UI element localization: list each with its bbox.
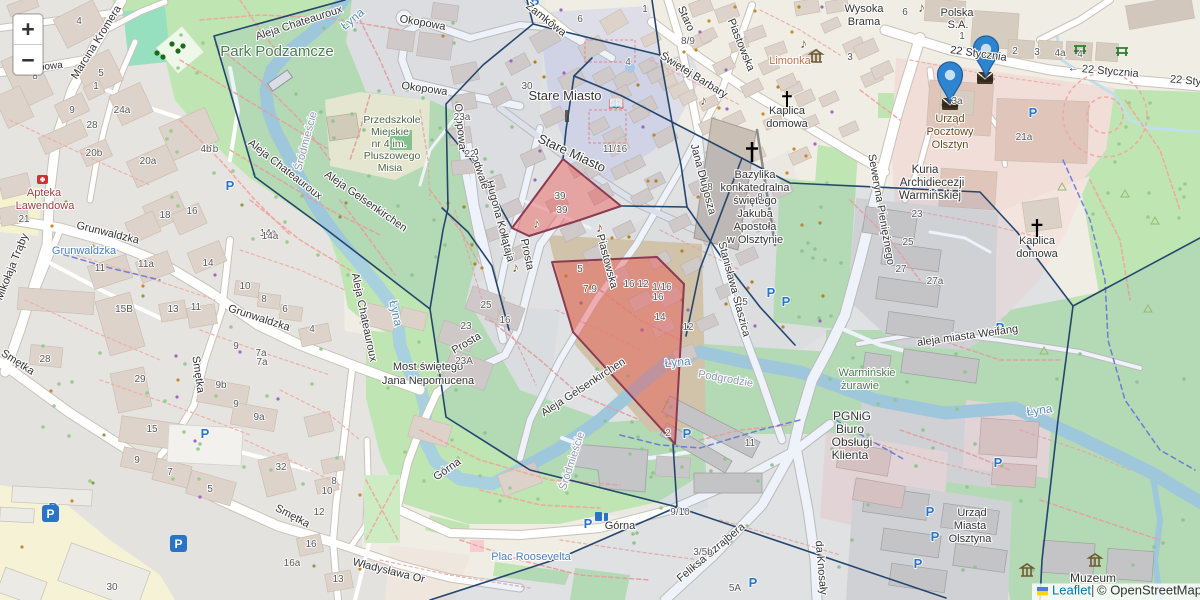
svg-text:5: 5 [742, 297, 748, 308]
svg-text:2: 2 [665, 428, 671, 439]
svg-text:P: P [914, 556, 923, 571]
svg-text:13: 13 [167, 304, 179, 315]
svg-text:1: 1 [93, 81, 99, 92]
svg-text:Apteka: Apteka [27, 187, 62, 199]
svg-text:Limonka: Limonka [769, 55, 811, 67]
svg-text:♪: ♪ [512, 259, 519, 275]
svg-text:4a: 4a [1054, 48, 1066, 59]
svg-text:4: 4 [625, 57, 631, 68]
svg-text:10: 10 [239, 281, 251, 292]
svg-text:−: − [21, 47, 34, 73]
svg-text:9: 9 [69, 105, 75, 116]
svg-text:14: 14 [202, 258, 214, 269]
svg-text:1: 1 [959, 31, 965, 42]
svg-text:15: 15 [146, 424, 158, 435]
svg-text:7.9: 7.9 [583, 284, 597, 295]
svg-text:28: 28 [86, 120, 98, 131]
svg-text:39: 39 [556, 205, 568, 216]
svg-text:22: 22 [464, 149, 476, 160]
svg-text:24a: 24a [114, 105, 131, 116]
svg-text:4: 4 [76, 16, 82, 27]
svg-text:Apostoła: Apostoła [734, 221, 778, 233]
svg-text:23a: 23a [454, 112, 471, 123]
svg-text:© OpenStreetMap: © OpenStreetMap [1097, 583, 1200, 598]
svg-text:16: 16 [305, 539, 317, 550]
svg-text:Przedszkole: Przedszkole [363, 114, 420, 126]
svg-text:16: 16 [499, 315, 511, 326]
svg-text:3/5b: 3/5b [693, 547, 713, 558]
svg-text:5: 5 [207, 484, 213, 495]
svg-text:23: 23 [911, 209, 923, 220]
svg-text:Archidiecezji: Archidiecezji [900, 177, 965, 189]
svg-text:6: 6 [577, 14, 583, 25]
svg-text:Kuria: Kuria [912, 164, 939, 176]
svg-text:Biuro: Biuro [836, 422, 864, 436]
svg-text:16: 16 [186, 206, 198, 217]
svg-text:Obsługi: Obsługi [832, 435, 873, 449]
svg-text:+: + [21, 16, 34, 42]
svg-text:Brama: Brama [848, 16, 881, 28]
svg-text:5: 5 [98, 68, 104, 79]
svg-text:9b: 9b [215, 380, 227, 391]
svg-text:13: 13 [332, 574, 344, 585]
svg-text:Warmińskiej: Warmińskiej [899, 190, 961, 202]
svg-text:32: 32 [275, 462, 287, 473]
svg-text:Leaflet: Leaflet [1052, 583, 1091, 598]
svg-text:w Olsztynie: w Olsztynie [726, 234, 783, 246]
svg-text:Jakuba: Jakuba [737, 208, 773, 220]
svg-text:11a: 11a [138, 259, 154, 270]
svg-text:Plac Roosevelta: Plac Roosevelta [491, 551, 571, 563]
svg-text:PGNiG: PGNiG [833, 409, 871, 423]
svg-text:Górna: Górna [605, 520, 636, 532]
svg-text:28: 28 [39, 354, 51, 365]
svg-text:P: P [994, 455, 1003, 470]
svg-text:18: 18 [159, 210, 171, 221]
svg-text:Park Podzamcze: Park Podzamcze [220, 43, 333, 60]
svg-text:11: 11 [191, 302, 202, 313]
svg-text:3a: 3a [951, 96, 963, 107]
svg-text:Kaplica: Kaplica [769, 105, 806, 117]
svg-text:żurawie: żurawie [841, 380, 879, 392]
svg-text:9: 9 [233, 399, 239, 410]
svg-text:nr 4 im.: nr 4 im. [371, 138, 406, 150]
svg-text:1/16: 1/16 [652, 282, 672, 293]
svg-text:P: P [767, 285, 776, 300]
svg-text:21: 21 [18, 214, 30, 225]
svg-text:Wysoka: Wysoka [844, 3, 884, 15]
svg-text:P: P [46, 507, 54, 521]
svg-text:6: 6 [282, 304, 288, 315]
svg-text:♪: ♪ [800, 35, 807, 51]
svg-text:9: 9 [134, 455, 140, 466]
svg-text:Bazylika: Bazylika [735, 169, 777, 181]
svg-text:P: P [782, 294, 791, 309]
svg-text:P: P [683, 426, 692, 441]
svg-text:4: 4 [309, 324, 315, 335]
svg-text:11: 11 [745, 438, 756, 449]
svg-text:15B: 15B [115, 304, 133, 315]
svg-text:8: 8 [757, 192, 763, 203]
svg-text:konkatedralna: konkatedralna [720, 182, 790, 194]
svg-text:16a: 16a [284, 558, 301, 569]
svg-text:P: P [201, 426, 210, 441]
svg-text:2: 2 [1012, 46, 1018, 57]
svg-text:9a: 9a [253, 412, 265, 423]
svg-text:11/16: 11/16 [603, 144, 628, 155]
svg-text:Klienta: Klienta [832, 448, 869, 462]
svg-text:domowa: domowa [1016, 248, 1058, 260]
svg-text:P: P [931, 529, 940, 544]
svg-text:27: 27 [895, 264, 907, 275]
svg-text:20a: 20a [140, 156, 157, 167]
svg-text:♪: ♪ [700, 92, 707, 108]
svg-text:23A: 23A [455, 356, 473, 367]
svg-text:39: 39 [554, 191, 566, 202]
svg-text:23: 23 [460, 321, 472, 332]
svg-text:4b: 4b [200, 144, 212, 155]
svg-text:16 12: 16 12 [623, 279, 648, 290]
svg-text:3: 3 [847, 52, 853, 63]
svg-text:12: 12 [313, 507, 325, 518]
svg-text:Pluszowego: Pluszowego [364, 150, 421, 162]
svg-text:9: 9 [233, 341, 239, 352]
svg-text:9/10: 9/10 [670, 507, 690, 518]
svg-text:Urząd: Urząd [957, 507, 986, 519]
svg-text:Olsztyna: Olsztyna [949, 533, 993, 545]
svg-text:5A: 5A [729, 583, 742, 594]
svg-text:12: 12 [682, 322, 694, 333]
svg-text:P: P [174, 537, 182, 551]
svg-text:Polska: Polska [940, 7, 974, 19]
svg-text:Pocztowy: Pocztowy [926, 126, 974, 138]
svg-text:1: 1 [642, 4, 648, 15]
svg-text:30: 30 [521, 81, 533, 92]
svg-text:P: P [584, 516, 593, 531]
svg-text:♪: ♪ [596, 219, 603, 235]
svg-text:Grunwaldzka: Grunwaldzka [52, 245, 117, 257]
svg-text:świętego: świętego [733, 195, 776, 207]
svg-text:Stare Miasto: Stare Miasto [529, 88, 602, 103]
svg-text:Miejskie: Miejskie [371, 126, 409, 138]
svg-text:Lawendowa: Lawendowa [16, 200, 76, 212]
svg-text:16: 16 [652, 292, 664, 303]
svg-text:11: 11 [95, 263, 106, 274]
svg-text:♪: ♪ [533, 215, 540, 231]
svg-text:4: 4 [1077, 49, 1083, 60]
svg-text:20b: 20b [86, 148, 103, 159]
svg-text:P: P [926, 504, 935, 519]
svg-text:25: 25 [902, 237, 914, 248]
svg-text:21a: 21a [1016, 132, 1033, 143]
svg-text:Misia: Misia [378, 162, 403, 174]
svg-text:5: 5 [577, 264, 583, 275]
svg-text:P: P [226, 178, 235, 193]
svg-text:25: 25 [480, 300, 492, 311]
svg-text:Most świętego: Most świętego [393, 361, 463, 373]
svg-text:P: P [749, 575, 758, 590]
svg-text:30: 30 [106, 582, 118, 593]
svg-text:S.A.: S.A. [948, 19, 969, 31]
svg-text:Urząd: Urząd [935, 113, 964, 125]
svg-text:27a: 27a [927, 276, 944, 287]
svg-text:Olsztyn: Olsztyn [932, 139, 969, 151]
svg-text:3: 3 [1034, 47, 1040, 58]
svg-text:|: | [1091, 583, 1094, 598]
svg-text:♪: ♪ [918, 0, 925, 15]
svg-text:📖: 📖 [608, 96, 624, 111]
svg-text:7a: 7a [256, 357, 268, 368]
svg-text:Warmińskie: Warmińskie [838, 367, 895, 379]
svg-text:P: P [1029, 105, 1038, 120]
svg-text:Kaplica: Kaplica [1019, 235, 1056, 247]
svg-text:8/9: 8/9 [681, 36, 695, 47]
svg-text:14: 14 [654, 312, 666, 323]
svg-text:29: 29 [134, 374, 146, 385]
svg-text:Jana Nepomucena: Jana Nepomucena [382, 375, 475, 387]
svg-text:14a: 14a [262, 231, 279, 242]
svg-text:domowa: domowa [766, 118, 808, 130]
svg-text:10: 10 [321, 486, 333, 497]
svg-text:8: 8 [707, 182, 713, 193]
svg-text:8: 8 [261, 294, 267, 305]
svg-text:Łyna: Łyna [664, 354, 691, 370]
svg-text:Miasta: Miasta [954, 520, 987, 532]
svg-text:6: 6 [902, 7, 908, 18]
svg-text:7: 7 [167, 467, 173, 478]
